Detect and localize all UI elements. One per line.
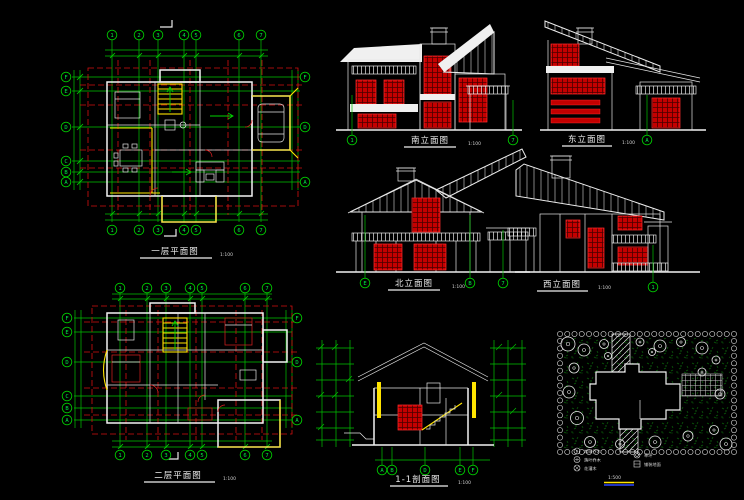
plan2-scale: 1:100	[223, 476, 236, 482]
hedge-circle	[666, 449, 671, 454]
hedge-circle	[652, 449, 657, 454]
grid-bubble-label: 6	[243, 286, 246, 292]
hedge-circle	[688, 331, 693, 336]
section-stair	[422, 403, 462, 430]
hedge-circle	[702, 449, 707, 454]
hedge-circle	[681, 449, 686, 454]
hedge-circle	[731, 331, 736, 336]
hedge-circle	[557, 449, 562, 454]
grid-bubble-label: 7	[511, 138, 514, 144]
plan1-bubbles-bottom: 1234567	[107, 225, 266, 235]
hedge-circle	[731, 435, 736, 440]
grid-bubble-label: 6	[237, 33, 240, 39]
grid-bubble-label: 1	[110, 228, 113, 234]
elev-south-left-roof	[340, 44, 422, 62]
hedge-circle	[731, 420, 736, 425]
hedge-circle	[673, 331, 678, 336]
section-bubbles: ABDEF	[377, 465, 478, 475]
hedge-circle	[731, 449, 736, 454]
legend-item: 铺装地面	[634, 461, 661, 468]
hedge-circle	[557, 361, 562, 366]
tree-symbol	[585, 437, 596, 448]
grid-bubble-label: F	[65, 316, 68, 322]
site-paving	[682, 374, 722, 396]
tree-symbol	[600, 340, 609, 349]
hedge-circle	[557, 383, 562, 388]
legend-item: 草坪	[634, 452, 652, 459]
site-legend: 常绿乔木 落叶乔木 花灌木 草坪 铺装地面	[574, 448, 661, 472]
section-1-1: ABDEF 1-1剖面图 1:100	[316, 340, 526, 486]
elev-east-wing-roof	[606, 58, 700, 82]
grid-bubble-label: 5	[194, 33, 197, 39]
hedge-circle	[557, 413, 562, 418]
grid-bubble-label: 6	[243, 453, 246, 459]
hedge-circle	[702, 331, 707, 336]
hedge-circle	[557, 331, 562, 336]
tree-symbol	[563, 386, 575, 398]
hedge-circle	[565, 449, 570, 454]
elevation-north: EB7 北立面图 1:100	[336, 149, 530, 290]
hedge-circle	[557, 420, 562, 425]
grid-bubble-label: E	[458, 468, 461, 474]
tree-symbol	[561, 337, 575, 351]
plan1-grid-lines	[72, 40, 300, 222]
tree-symbol	[677, 338, 686, 347]
plan2-right-bay	[263, 330, 287, 362]
hedge-circle	[731, 353, 736, 358]
legend-label: 花灌木	[584, 465, 597, 472]
grid-bubble-label: D	[295, 360, 298, 366]
plan1-bubbles-right: FDA	[300, 72, 310, 187]
site-scale-bar	[604, 483, 634, 486]
plan2-top-balcony	[150, 303, 195, 313]
plan2-yellow-accents	[104, 350, 281, 447]
elev-south-chimney	[430, 28, 448, 44]
hedge-circle	[673, 449, 678, 454]
hedge-circle	[557, 442, 562, 447]
hedge-circle	[608, 449, 613, 454]
grid-bubble-label: E	[65, 330, 68, 336]
hedge-circle	[666, 331, 671, 336]
grid-bubble-label: E	[363, 281, 366, 287]
site-plan: 常绿乔木 落叶乔木 花灌木 草坪 铺装地面 1:500	[557, 331, 736, 485]
hedge-circle	[731, 413, 736, 418]
plan2-bubbles-right: FDA	[292, 313, 302, 425]
hedge-circle	[710, 449, 715, 454]
hedge-circle	[557, 435, 562, 440]
tree-symbol	[710, 426, 719, 435]
hedge-circle	[731, 428, 736, 433]
grid-bubble-label: 3	[164, 286, 167, 292]
grid-bubble-label: C	[64, 159, 67, 165]
elev-west-scale: 1:100	[598, 285, 611, 291]
plan1-title: 一层平面图	[151, 247, 199, 257]
elev-north-chimney	[396, 168, 416, 181]
hedge-circle	[717, 449, 722, 454]
legend-label: 落叶乔木	[584, 457, 602, 464]
hedge-circle	[695, 331, 700, 336]
hedge-circle	[594, 331, 599, 336]
plan2-title: 二层平面图	[154, 471, 202, 481]
hedge-circle	[557, 405, 562, 410]
plan2-bubbles-bottom: 1234567	[115, 450, 272, 460]
elevation-south: 17 南立面图 1:100	[336, 24, 522, 147]
plan1-walls	[107, 70, 290, 222]
floor-plan-1: 1234567 1234567 FEDCBA FDA 一层平面图 1:100	[61, 20, 310, 258]
elevation-west: 1 西立面图 1:100	[508, 156, 700, 292]
grid-bubble-label: 7	[265, 286, 268, 292]
grid-bubble-label: D	[423, 468, 426, 474]
elev-north-bubbles: EB7	[360, 278, 508, 288]
legend-item: 常绿乔木	[574, 448, 602, 455]
elev-east-bubbles: A	[642, 135, 652, 145]
section-roof	[358, 343, 488, 381]
elev-west-title: 西立面图	[543, 279, 581, 290]
grid-bubble-label: 2	[137, 33, 140, 39]
plan2-dim-ticks	[118, 296, 270, 449]
elev-south-scale: 1:100	[468, 141, 481, 147]
grid-bubble-label: 5	[200, 453, 203, 459]
grid-bubble-label: 3	[156, 228, 159, 234]
legend-item: 花灌木	[574, 465, 597, 472]
grid-bubble-label: 1	[118, 453, 121, 459]
hedge-circle	[688, 449, 693, 454]
tree-symbol	[712, 356, 720, 364]
hedge-circle	[724, 331, 729, 336]
tree-symbol	[571, 412, 584, 425]
grid-bubble-label: 5	[200, 286, 203, 292]
grid-bubble-label: 7	[265, 453, 268, 459]
grid-bubble-label: C	[65, 394, 68, 400]
tree-symbol	[649, 349, 656, 356]
grid-bubble-label: 5	[194, 228, 197, 234]
plan2-bubbles-left: FEDCBA	[62, 313, 72, 425]
grid-bubble-label: 2	[137, 228, 140, 234]
hedge-circle	[557, 390, 562, 395]
cad-sheet: 1234567 1234567 FEDCBA FDA 一层平面图 1:100 1…	[0, 0, 744, 500]
hedge-circle	[652, 331, 657, 336]
hedge-circle	[731, 398, 736, 403]
grid-bubble-label: 3	[164, 453, 167, 459]
hedge-circle	[731, 361, 736, 366]
elev-east-title: 东立面图	[568, 134, 606, 145]
plan1-bubbles-left: FEDCBA	[61, 72, 71, 187]
elev-north-title: 北立面图	[395, 278, 433, 289]
elev-north-rear-slope	[436, 149, 526, 198]
tree-symbol	[720, 438, 732, 450]
plan1-entry-porch	[160, 70, 200, 82]
hedge-circle	[731, 346, 736, 351]
plan1-door-swings	[150, 120, 252, 196]
grid-bubble-label: F	[64, 75, 67, 81]
hedge-circle	[681, 331, 686, 336]
hedge-circle	[659, 331, 664, 336]
grid-bubble-label: 3	[156, 33, 159, 39]
hedge-circle	[717, 331, 722, 336]
grid-bubble-label: 1	[350, 138, 353, 144]
plan1-furniture	[114, 92, 284, 182]
section-bottom-dim	[375, 447, 490, 465]
elev-west-left-porch	[508, 228, 536, 272]
tree-symbol	[649, 436, 661, 448]
tree-symbol	[605, 353, 612, 360]
grid-bubble-label: D	[64, 125, 67, 131]
hedge-circle	[601, 449, 606, 454]
hedge-circle	[659, 449, 664, 454]
grid-bubble-label: 7	[259, 33, 262, 39]
plan1-stairs	[158, 84, 182, 114]
tree-symbol	[578, 344, 590, 356]
grid-bubble-label: D	[303, 125, 306, 131]
grid-bubble-label: F	[471, 468, 474, 474]
hedge-circle	[565, 331, 570, 336]
hedge-circle	[557, 368, 562, 373]
hedge-circle	[557, 428, 562, 433]
site-scale: 1:500	[608, 475, 621, 481]
hedge-circle	[644, 331, 649, 336]
grid-bubble-label: F	[303, 75, 306, 81]
hedge-circle	[557, 353, 562, 358]
hedge-circle	[557, 376, 562, 381]
tree-symbol	[654, 340, 666, 352]
plan1-dim-ticks	[77, 53, 264, 216]
grid-bubble-label: 1	[110, 33, 113, 39]
hedge-circle	[731, 405, 736, 410]
section-dim-right	[490, 340, 526, 447]
legend-label: 铺装地面	[644, 461, 661, 468]
elev-west-shed-roof	[516, 164, 664, 220]
section-dim-left	[316, 340, 354, 447]
hedge-circle	[630, 331, 635, 336]
tree-symbol	[683, 431, 693, 441]
grid-bubble-label: F	[295, 316, 298, 322]
hedge-circle	[579, 331, 584, 336]
plan2-bubbles-top: 1234567	[115, 283, 272, 293]
tree-symbol	[569, 363, 579, 373]
plan2-stairs	[163, 318, 187, 352]
section-columns	[377, 382, 476, 418]
plan1-scale: 1:100	[220, 252, 233, 258]
tree-symbol	[636, 338, 644, 346]
grid-bubble-label: 2	[145, 286, 148, 292]
plan1-bubbles-top: 1234567	[107, 30, 266, 40]
elev-west-bubbles: 1	[648, 282, 658, 292]
elev-east-red-stripes	[551, 100, 600, 123]
floor-plan-2: 1234567 1234567 FEDCBA FDA 二层平面图 1:100	[62, 283, 302, 482]
hedge-circle	[695, 449, 700, 454]
hedge-circle	[586, 331, 591, 336]
hedge-circle	[572, 331, 577, 336]
hedge-circle	[731, 338, 736, 343]
legend-label: 常绿乔木	[584, 448, 602, 455]
legend-label: 草坪	[644, 452, 652, 459]
grid-bubble-label: 6	[237, 228, 240, 234]
hedge-circle	[710, 331, 715, 336]
legend-item: 落叶乔木	[574, 457, 602, 464]
elev-east-scale: 1:100	[622, 140, 635, 146]
site-building-footprint	[590, 364, 680, 429]
grid-bubble-label: D	[65, 360, 68, 366]
hedge-circle	[731, 390, 736, 395]
section-stair-hatch	[398, 405, 422, 430]
site-walkway-bottom	[620, 429, 638, 452]
section-scale: 1:100	[458, 480, 471, 486]
hedge-circle	[731, 376, 736, 381]
grid-bubble-label: E	[64, 89, 67, 95]
hedge-circle	[637, 331, 642, 336]
elev-north-balcony-band	[352, 233, 480, 241]
elevation-east: A 东立面图 1:100	[540, 21, 706, 146]
hedge-circle	[557, 398, 562, 403]
grid-bubble-label: 1	[118, 286, 121, 292]
grid-bubble-label: 7	[501, 281, 504, 287]
elev-south-title: 南立面图	[411, 135, 449, 146]
hedge-circle	[601, 331, 606, 336]
grid-bubble-label: 1	[651, 285, 654, 291]
grid-bubble-label: 2	[145, 453, 148, 459]
tree-symbol	[696, 342, 708, 354]
plan1-south-porch	[162, 196, 216, 222]
elev-north-scale: 1:100	[452, 284, 465, 290]
hedge-circle	[731, 383, 736, 388]
section-title: 1-1剖面图	[395, 474, 440, 485]
hedge-circle	[731, 368, 736, 373]
plan1-red-dashed-lines	[80, 60, 305, 215]
grid-bubble-label: 7	[259, 228, 262, 234]
elev-south-roof-hatch	[444, 32, 494, 74]
